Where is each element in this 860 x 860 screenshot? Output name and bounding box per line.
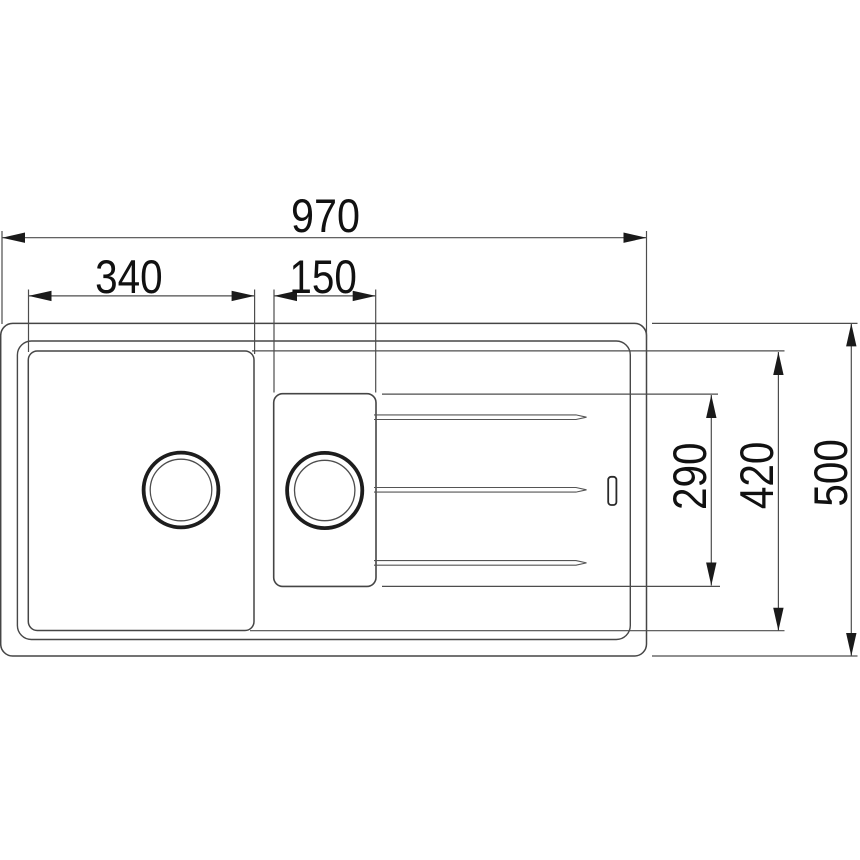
svg-text:500: 500 bbox=[804, 439, 857, 507]
svg-text:340: 340 bbox=[95, 250, 163, 303]
svg-text:150: 150 bbox=[289, 250, 357, 303]
svg-text:970: 970 bbox=[291, 189, 360, 242]
svg-text:420: 420 bbox=[730, 442, 783, 510]
svg-text:290: 290 bbox=[663, 443, 716, 511]
